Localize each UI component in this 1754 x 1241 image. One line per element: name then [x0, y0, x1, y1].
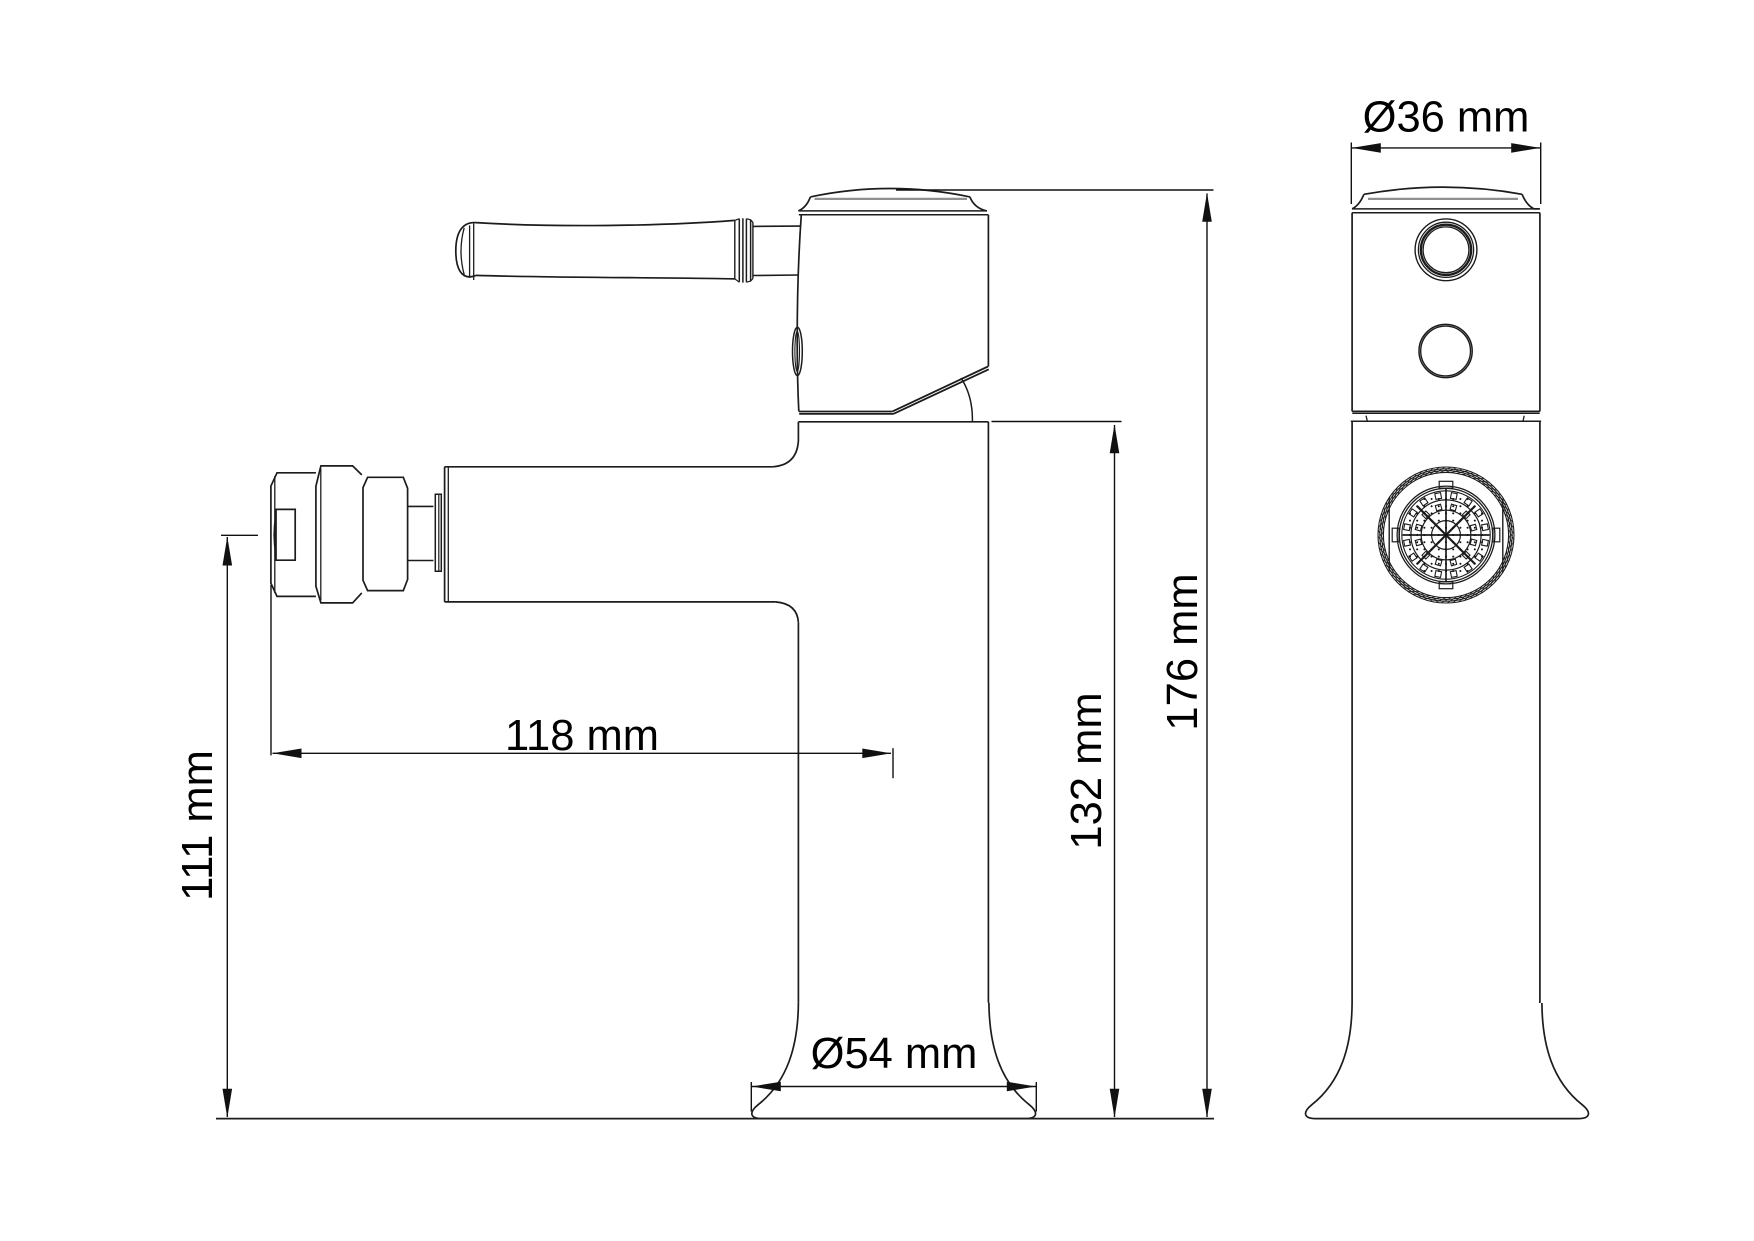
svg-text:Ø36 mm: Ø36 mm — [1363, 94, 1530, 142]
svg-text:118 mm: 118 mm — [505, 712, 659, 760]
svg-text:Ø54 mm: Ø54 mm — [811, 1030, 978, 1078]
svg-text:176 mm: 176 mm — [1159, 573, 1207, 730]
svg-text:111 mm: 111 mm — [174, 750, 222, 901]
svg-text:132 mm: 132 mm — [1063, 692, 1111, 849]
